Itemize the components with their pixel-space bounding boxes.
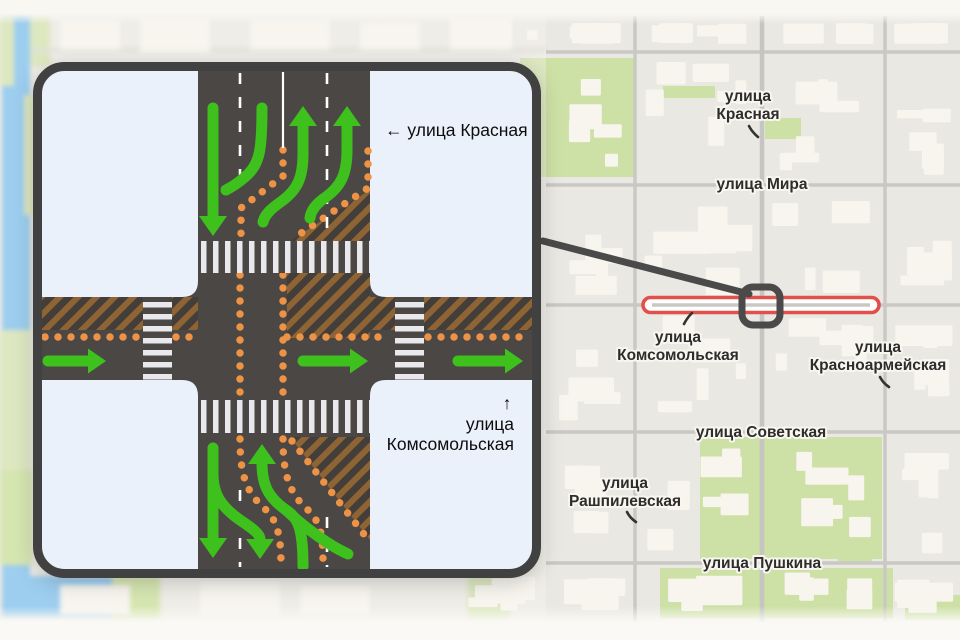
hatched-buffer-zone [42,297,198,330]
building [895,24,924,39]
hatched-buffer-zone [287,273,370,338]
building [722,449,740,458]
building [658,401,692,412]
street-label-krasnoarmeyskaya: Красноармейская [810,357,947,374]
street-label-pushkina: улица Пушкина [703,555,822,572]
building [574,511,600,533]
building [836,23,867,43]
street-label-komsomolskaya: улица [655,329,702,346]
building [646,90,664,117]
building [927,468,938,498]
building [589,579,626,596]
building [576,350,598,367]
building [785,573,810,595]
building [576,276,617,295]
north-arrow: ↑ [503,393,512,413]
building [923,339,937,348]
building [570,379,599,389]
street-label-krasnaya: Красная [716,106,779,123]
building [697,25,736,36]
hatched-buffer-zone [370,297,532,330]
inset-label-krasnaya: ← улица Красная [385,120,528,140]
building [698,207,728,238]
building [701,457,742,478]
building [581,79,601,96]
street-label-rashpilevskaya: Рашпилевская [569,493,681,510]
building [736,363,746,379]
building [928,383,950,396]
crosswalk-east [395,297,424,380]
building [796,136,815,153]
building [905,453,950,470]
highlighted-road-segment [643,298,879,313]
building [772,203,798,226]
building [902,469,928,480]
building [909,132,936,151]
street-label-komsomolskaya: Комсомольская [617,347,739,364]
building [848,475,864,500]
street-label-krasnaya: улица [725,88,772,105]
inset-label-komsomolskaya: улица [466,414,514,434]
intersection-inset-diagram: ← улица Красная ↑ улица Комсомольская [33,62,541,578]
building [570,27,591,39]
building [647,529,673,551]
building [826,273,859,281]
bottom-fade-band [0,606,960,640]
building [832,201,870,223]
building [796,452,812,471]
building [782,153,819,163]
street-label-sovetskaya: улица Советская [696,424,826,441]
building [847,578,872,603]
building [923,109,951,123]
building [693,64,729,82]
building [559,395,578,420]
crosswalk-north [198,241,370,273]
building [819,101,859,112]
street-label-rashpilevskaya: улица [602,475,649,492]
building [907,247,924,275]
building [697,368,709,400]
inset-label-komsomolskaya: Комсомольская [387,434,514,454]
crosswalk-south [198,400,370,433]
building [569,120,590,142]
building [721,494,749,516]
building [605,154,618,167]
building [933,241,952,261]
building [905,584,928,606]
building [652,25,676,42]
building [668,579,698,602]
street-label-mira: улица Мира [717,176,808,193]
building [922,533,942,554]
building [776,354,787,371]
road-closure-infographic: улица Красная улица Мира улица Комсомоль… [0,0,960,640]
building [818,79,828,92]
building [849,517,871,537]
building [584,392,621,404]
building [801,498,833,526]
building [805,268,816,291]
building [819,331,847,345]
building [657,62,686,84]
crosswalk-west [143,297,172,380]
top-fade-band [0,0,960,24]
building [783,24,824,44]
street-label-krasnoarmeyskaya: улица [855,339,902,356]
park-area [663,86,715,98]
